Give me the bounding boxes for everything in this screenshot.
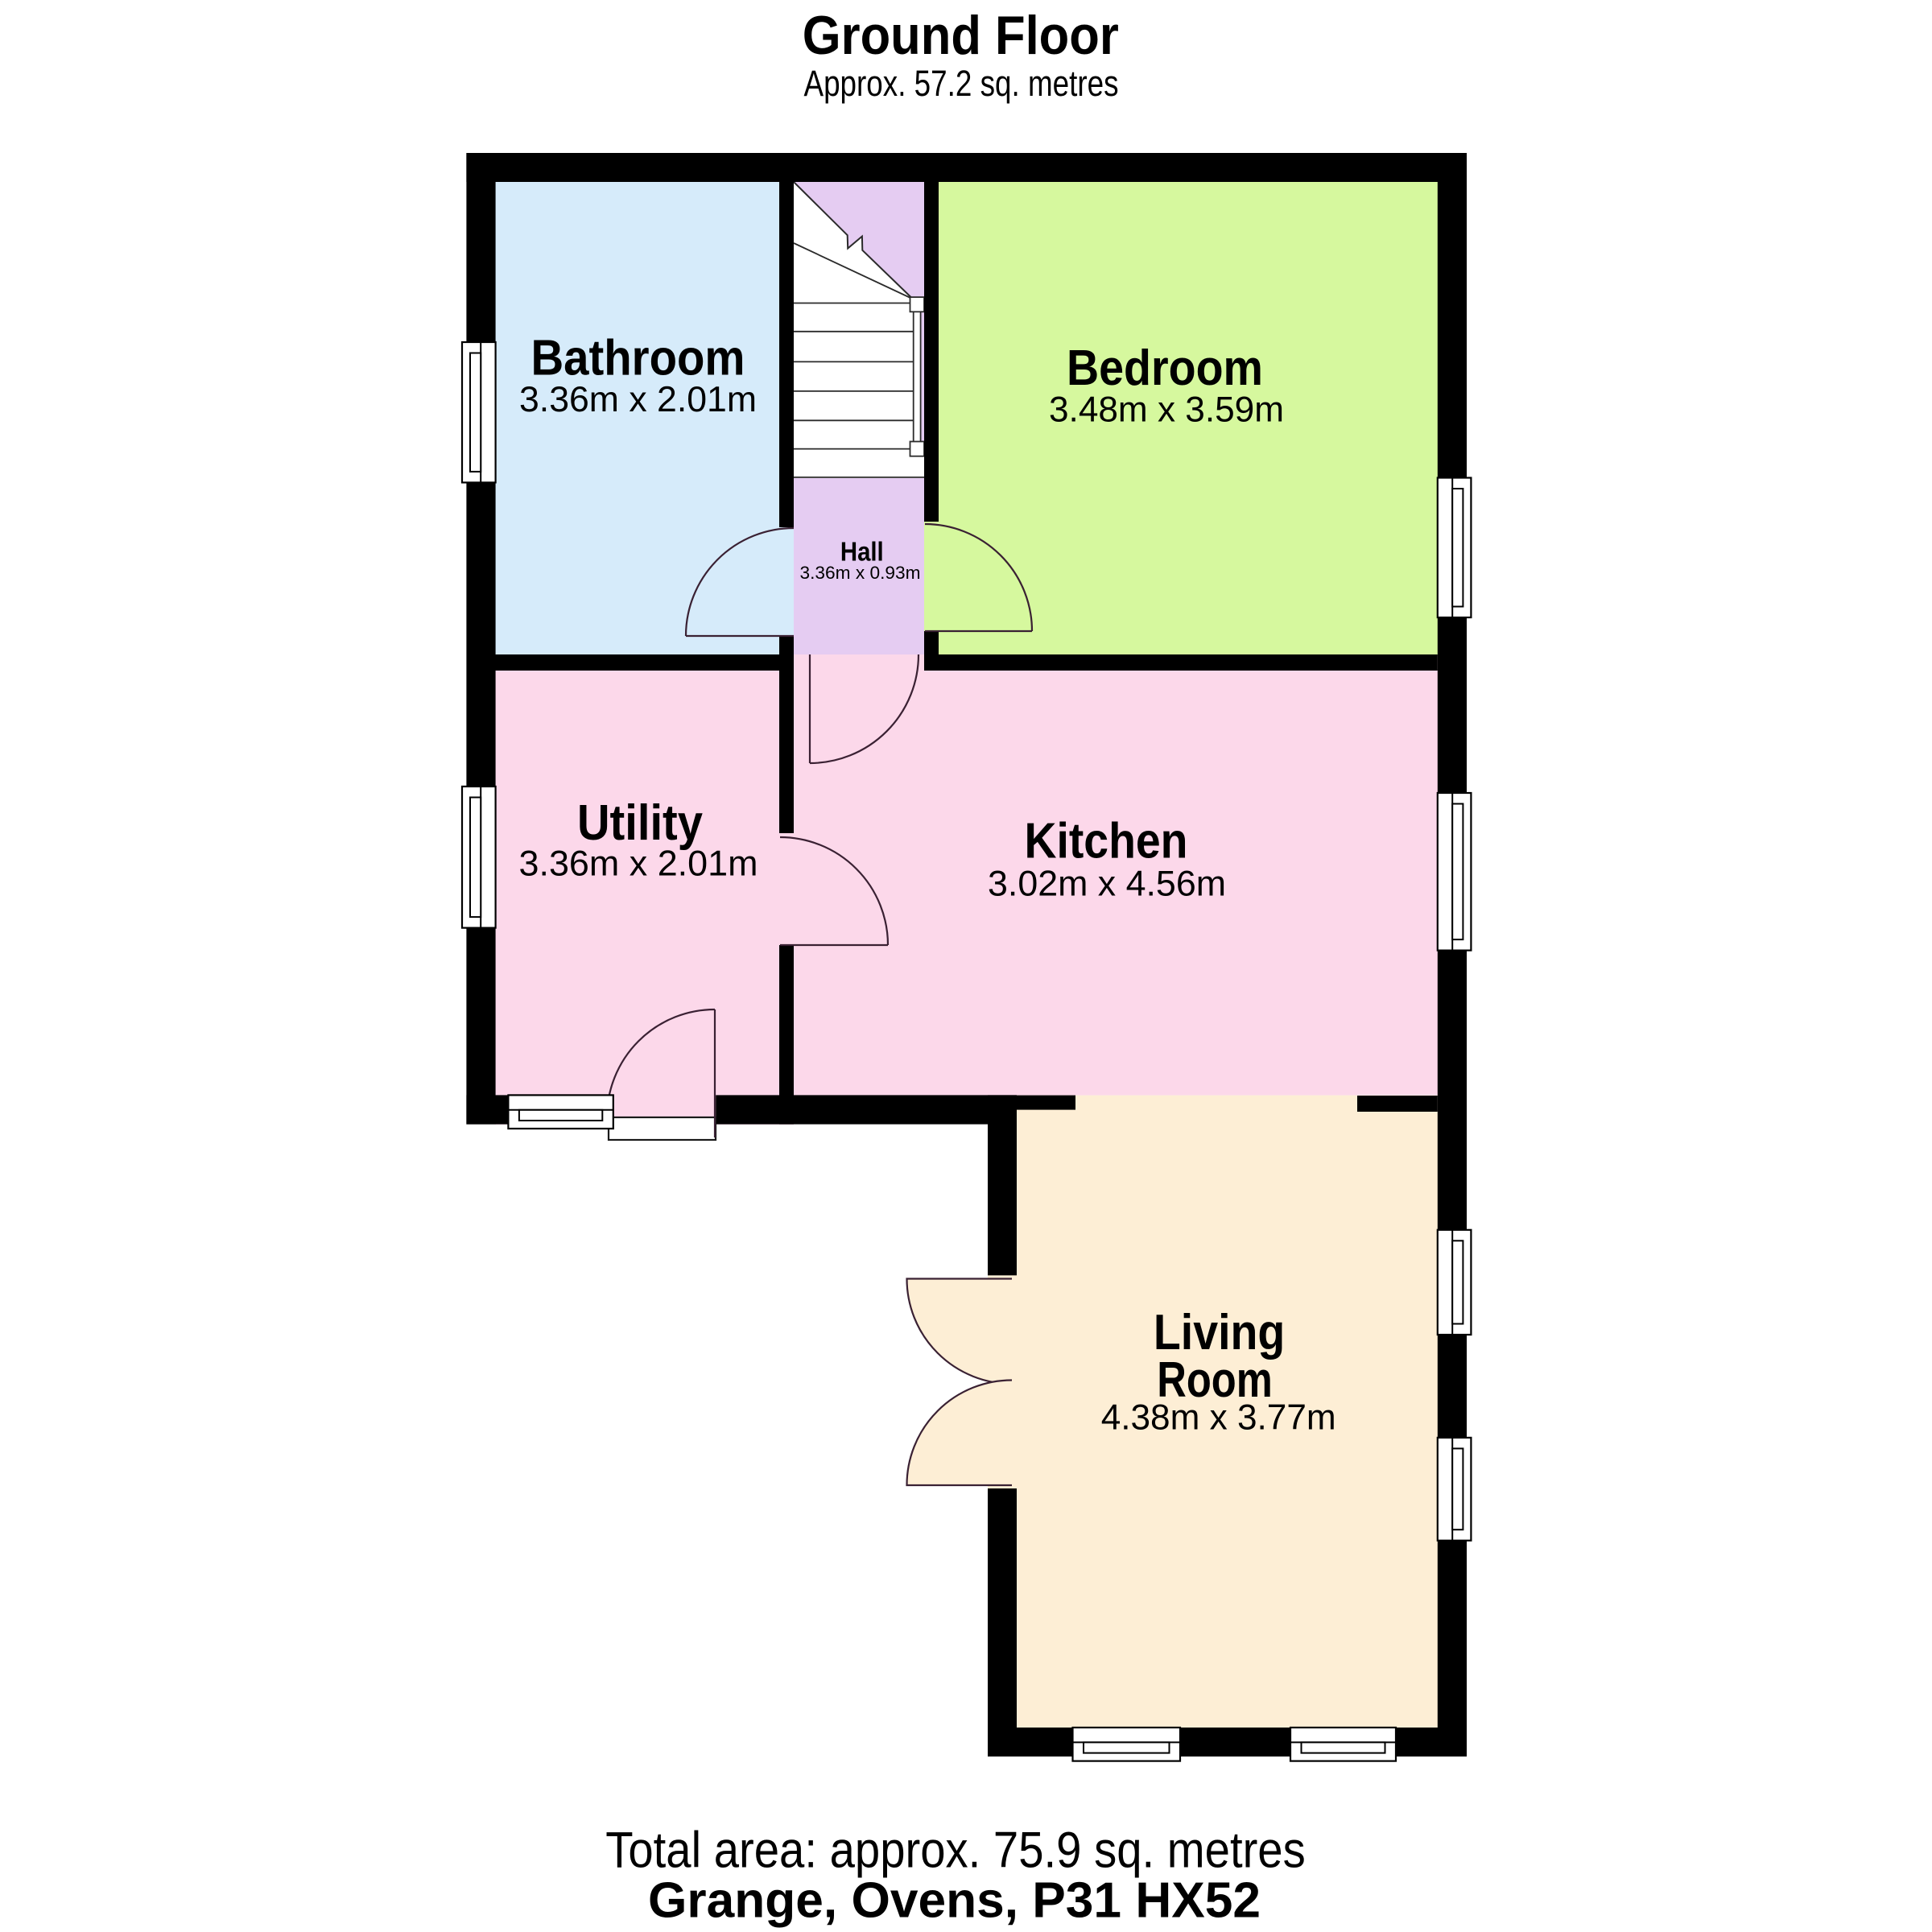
svg-text:3.48m x 3.59m: 3.48m x 3.59m: [1049, 390, 1284, 429]
svg-text:Bedroom: Bedroom: [1067, 341, 1263, 396]
svg-text:Utility: Utility: [577, 795, 703, 851]
svg-text:Kitchen: Kitchen: [1025, 814, 1188, 869]
svg-text:Grange, Ovens, P31 HX52: Grange, Ovens, P31 HX52: [648, 1873, 1261, 1929]
svg-text:Total area: approx. 75.9 sq. m: Total area: approx. 75.9 sq. metres: [605, 1822, 1306, 1878]
svg-text:3.36m x 2.01m: 3.36m x 2.01m: [519, 844, 758, 883]
svg-text:Bathroom: Bathroom: [531, 331, 745, 386]
svg-text:Ground Floor: Ground Floor: [803, 5, 1119, 66]
svg-text:Approx. 57.2 sq. metres: Approx. 57.2 sq. metres: [804, 63, 1119, 104]
svg-text:4.38m x 3.77m: 4.38m x 3.77m: [1101, 1397, 1336, 1437]
svg-text:3.36m x 2.01m: 3.36m x 2.01m: [519, 380, 757, 419]
svg-text:3.02m x 4.56m: 3.02m x 4.56m: [988, 865, 1226, 904]
svg-text:3.36m x 0.93m: 3.36m x 0.93m: [800, 563, 921, 583]
